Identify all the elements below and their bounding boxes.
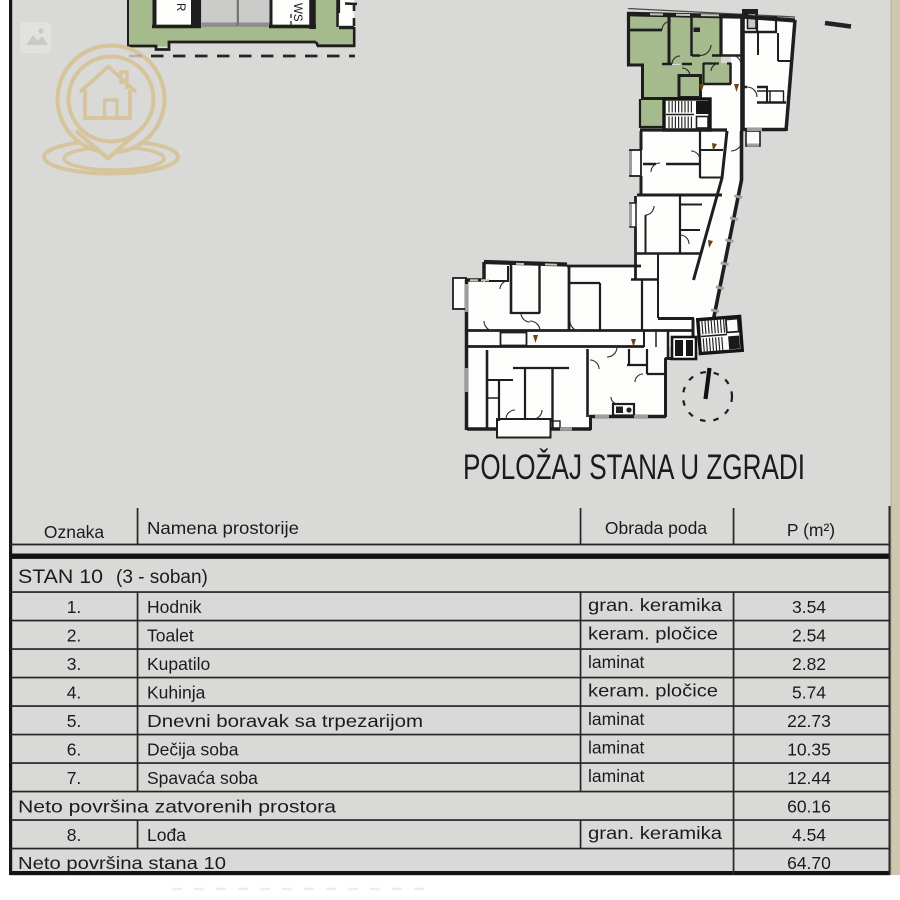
svg-text:2.82: 2.82 (792, 654, 826, 674)
svg-text:laminat: laminat (588, 738, 645, 758)
svg-text:2.: 2. (67, 626, 82, 646)
svg-text:7.: 7. (67, 768, 82, 788)
svg-text:keram. pločice: keram. pločice (588, 624, 718, 644)
svg-text:Namena prostorije: Namena prostorije (147, 518, 299, 538)
svg-text:4.54: 4.54 (792, 825, 826, 845)
svg-text:10.35: 10.35 (787, 740, 831, 760)
svg-text:64.70: 64.70 (787, 853, 831, 873)
svg-text:3.: 3. (67, 654, 82, 674)
svg-text:R: R (174, 3, 186, 11)
svg-text:1.: 1. (67, 597, 82, 617)
svg-text:Kuhinja: Kuhinja (147, 683, 206, 703)
svg-text:2.54: 2.54 (792, 626, 826, 646)
svg-text:22.73: 22.73 (787, 711, 831, 731)
svg-text:keram. pločice: keram. pločice (588, 681, 718, 701)
svg-text:60.16: 60.16 (787, 797, 831, 817)
svg-text:laminat: laminat (588, 652, 645, 672)
svg-text:12.44: 12.44 (787, 768, 831, 788)
svg-text:gran. keramika: gran. keramika (588, 823, 722, 843)
svg-text:Neto površina stana 10: Neto površina stana 10 (18, 853, 226, 873)
svg-text:laminat: laminat (588, 709, 645, 729)
svg-text:Lođa: Lođa (147, 825, 186, 845)
svg-text:WS: WS (291, 3, 303, 22)
svg-text:Neto površina zatvorenih prost: Neto površina zatvorenih prostora (18, 797, 336, 817)
svg-text:(3 - soban): (3 - soban) (116, 567, 208, 588)
svg-text:Kupatilo: Kupatilo (147, 654, 210, 674)
svg-text:gran. keramika: gran. keramika (588, 595, 722, 615)
svg-text:3.54: 3.54 (792, 597, 826, 617)
svg-text:5.74: 5.74 (792, 683, 826, 703)
svg-text:Dečija soba: Dečija soba (147, 740, 239, 760)
svg-text:P (m²): P (m²) (787, 520, 835, 540)
svg-text:laminat: laminat (588, 766, 645, 786)
svg-text:5.: 5. (67, 711, 82, 731)
svg-text:4.: 4. (67, 683, 82, 703)
svg-text:STAN 10: STAN 10 (18, 567, 103, 588)
svg-text:Spavaća soba: Spavaća soba (147, 768, 258, 788)
svg-text:8.: 8. (67, 825, 82, 845)
svg-text:Oznaka: Oznaka (44, 522, 105, 542)
svg-text:Toalet: Toalet (147, 626, 194, 646)
svg-text:Hodnik: Hodnik (147, 597, 202, 617)
svg-text:Obrada poda: Obrada poda (605, 518, 707, 538)
svg-text:POLOŽAJ STANA U ZGRADI: POLOŽAJ STANA U ZGRADI (463, 448, 805, 487)
svg-text:6.: 6. (67, 740, 82, 760)
svg-text:Dnevni boravak sa trpezarijom: Dnevni boravak sa trpezarijom (147, 711, 423, 731)
